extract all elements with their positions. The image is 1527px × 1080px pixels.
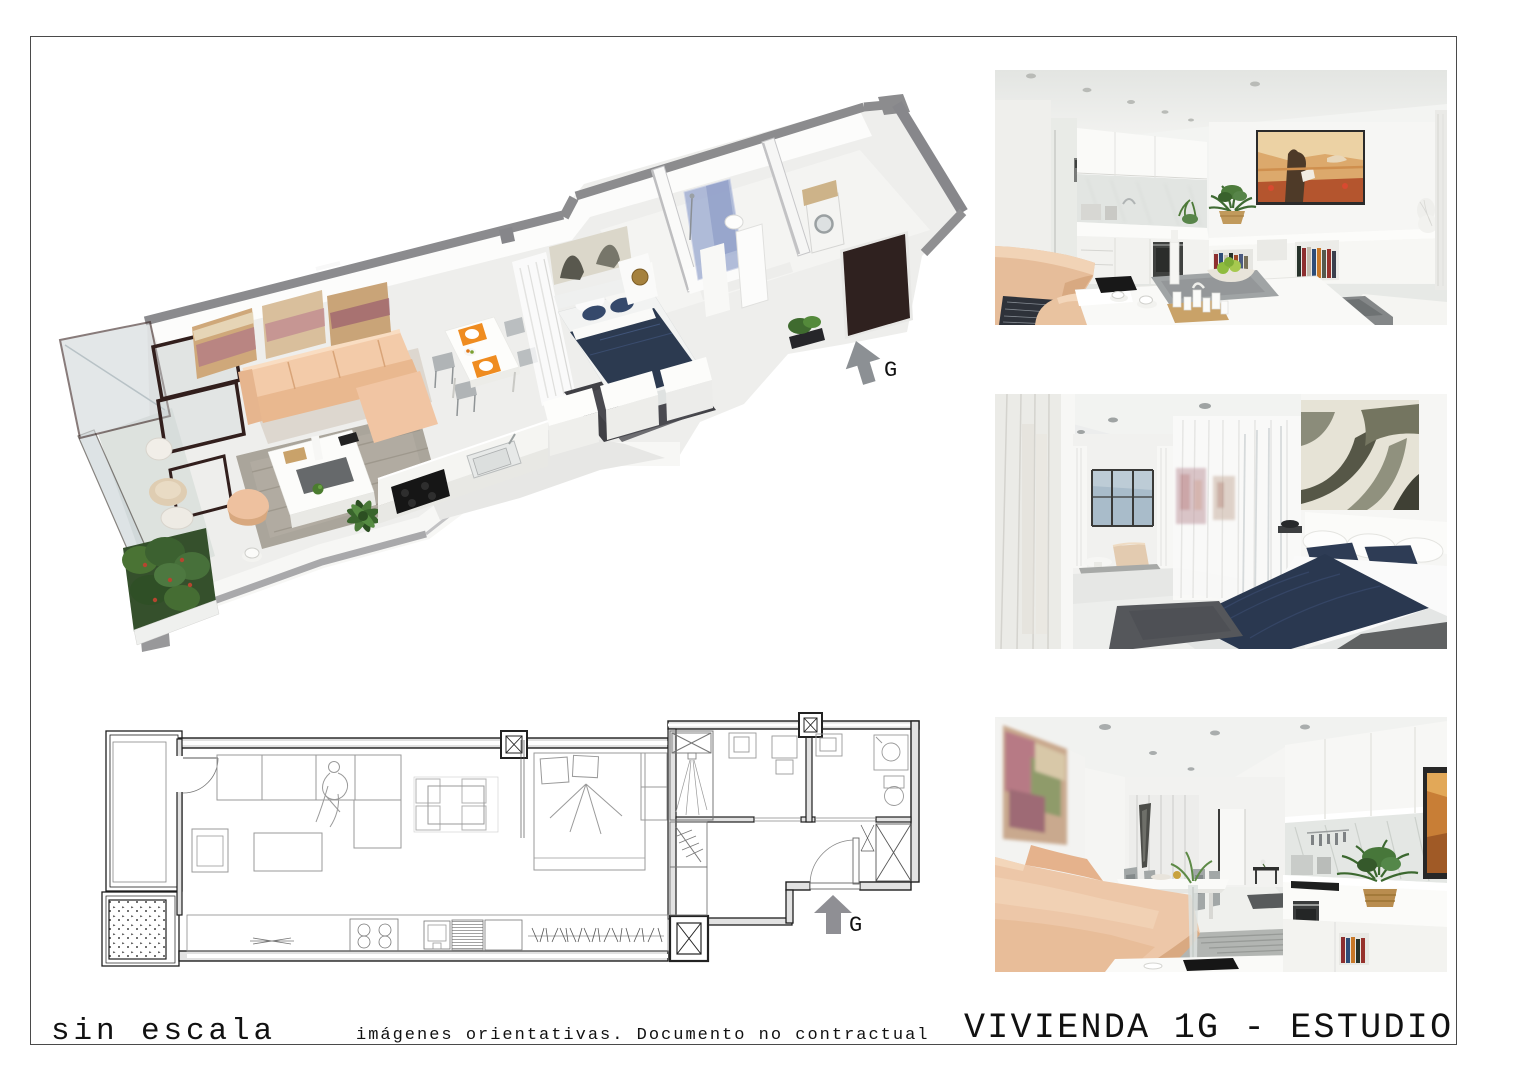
svg-text:G: G [849,913,862,938]
svg-text:G: G [884,358,897,383]
